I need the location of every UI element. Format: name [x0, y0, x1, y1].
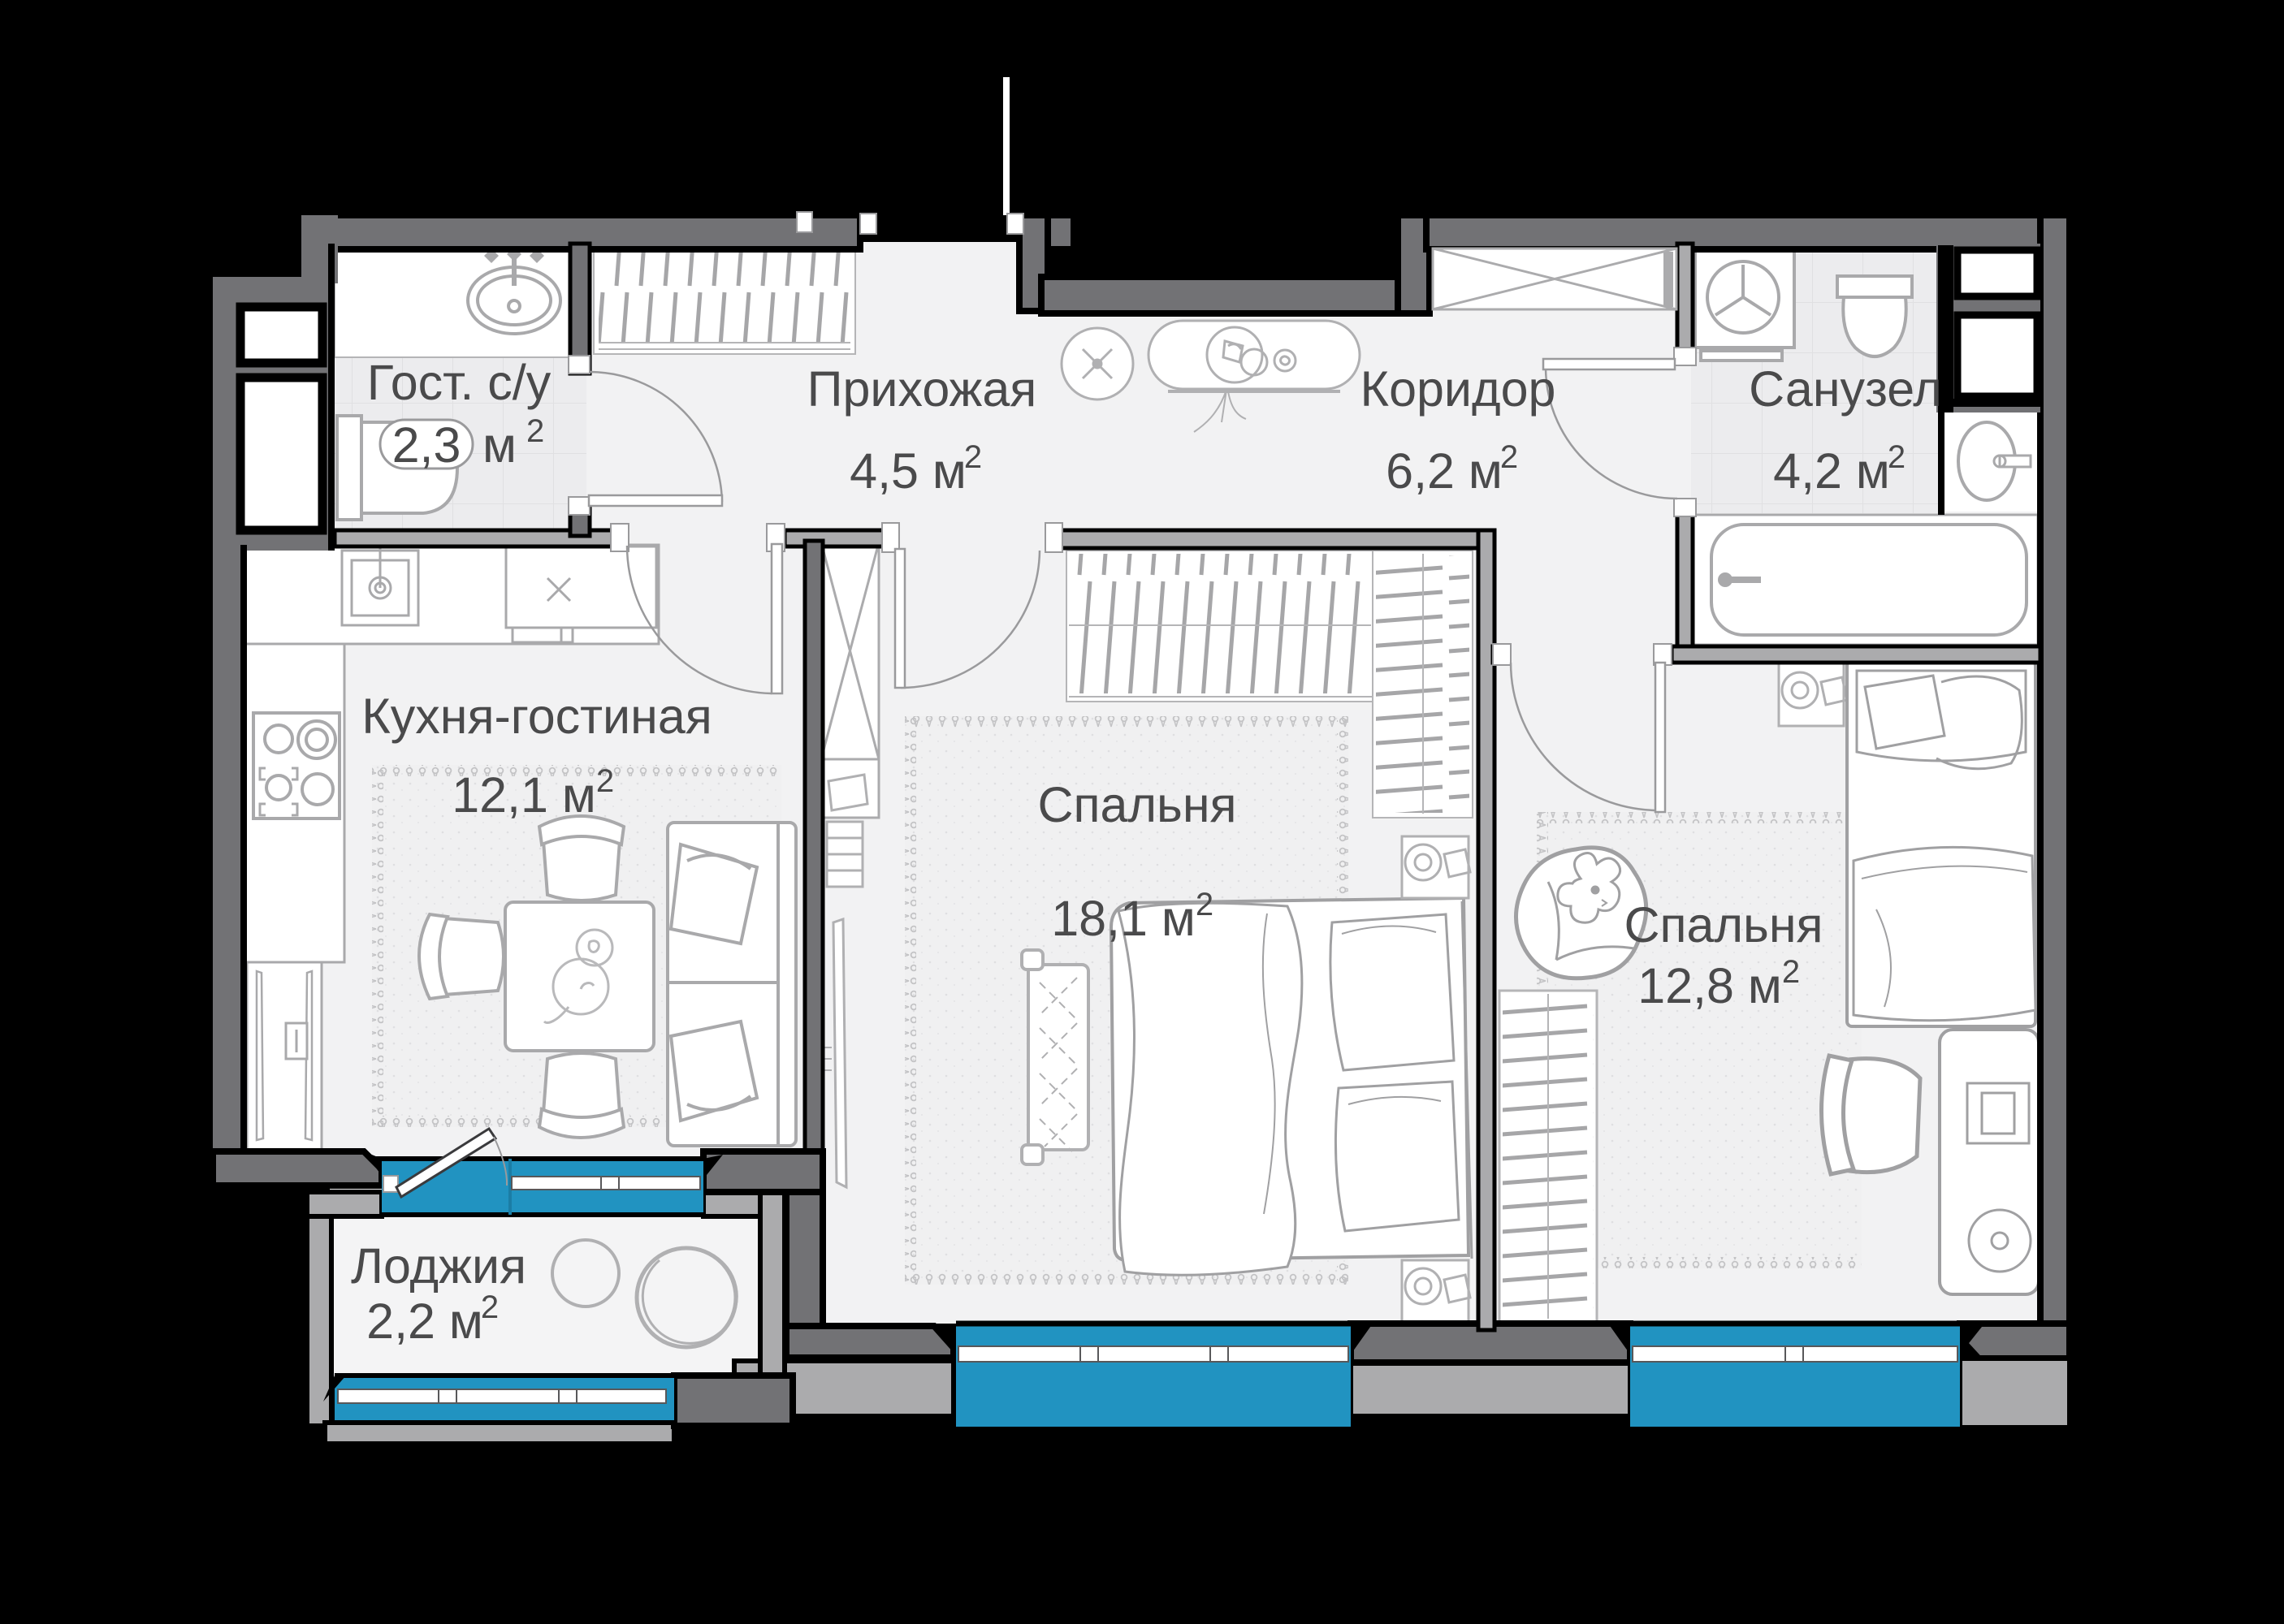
svg-text:4,5 м: 4,5 м — [850, 443, 967, 499]
svg-text:Кухня-гостиная: Кухня-гостиная — [361, 689, 712, 744]
svg-text:2: 2 — [526, 413, 544, 449]
svg-text:12,8 м: 12,8 м — [1637, 958, 1782, 1013]
svg-text:Санузел: Санузел — [1749, 361, 1942, 417]
svg-text:2,2 м: 2,2 м — [366, 1294, 483, 1349]
svg-text:2: 2 — [1782, 954, 1800, 990]
svg-text:Лоджия: Лоджия — [351, 1238, 526, 1294]
svg-text:Коридор: Коридор — [1360, 361, 1556, 417]
svg-text:2: 2 — [481, 1289, 499, 1325]
svg-text:12,1 м: 12,1 м — [452, 767, 596, 823]
svg-text:2: 2 — [1888, 439, 1905, 475]
svg-text:Спальня: Спальня — [1624, 897, 1823, 952]
svg-text:Прихожая: Прихожая — [807, 361, 1037, 417]
svg-text:6,2 м: 6,2 м — [1386, 443, 1503, 499]
svg-text:2: 2 — [1196, 887, 1213, 922]
svg-text:м: м — [482, 417, 517, 473]
svg-text:Спальня: Спальня — [1037, 777, 1236, 832]
svg-text:2: 2 — [1500, 439, 1518, 475]
svg-text:Гост. с/у: Гост. с/у — [367, 355, 552, 410]
svg-text:2: 2 — [964, 439, 982, 475]
svg-text:4,2 м: 4,2 м — [1773, 443, 1890, 499]
svg-text:18,1 м: 18,1 м — [1051, 891, 1196, 946]
svg-text:2: 2 — [596, 763, 614, 799]
svg-text:2,3: 2,3 — [392, 417, 461, 473]
